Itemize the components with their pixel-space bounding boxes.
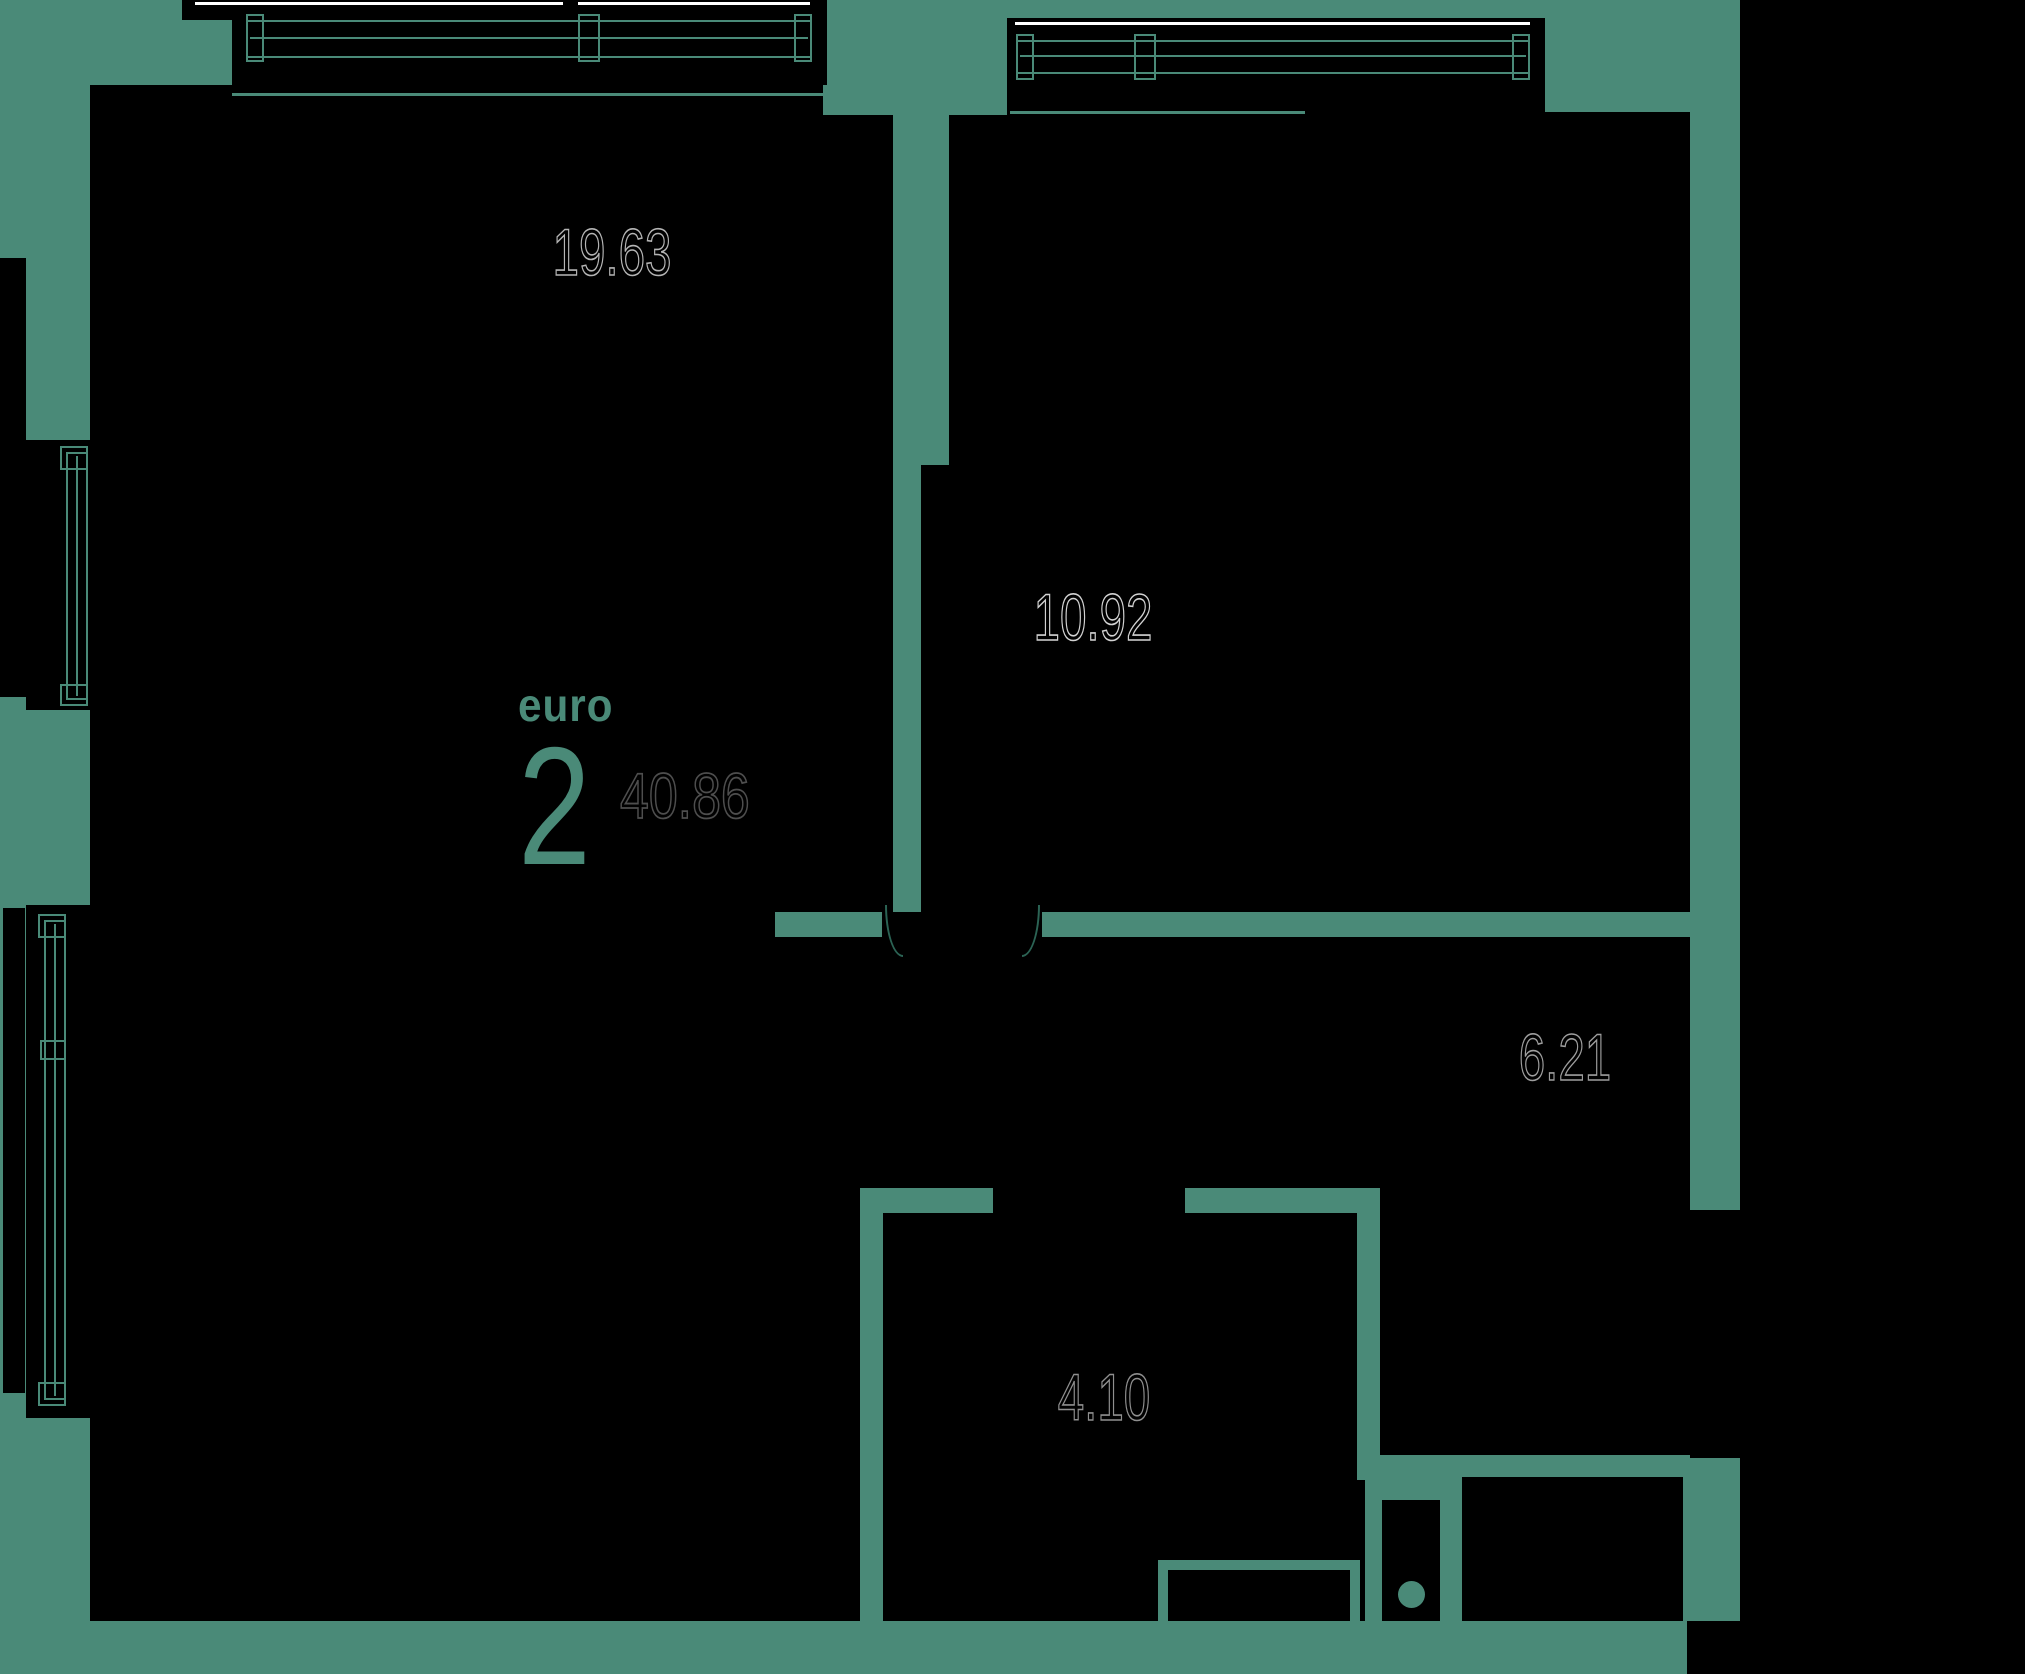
balcony-rail-lower [3,908,25,1393]
neighbor-block-bottom-right [1687,1621,2025,1674]
top-gap-between-rooms [823,85,1007,115]
window-cap-top-right-a [1016,34,1034,80]
window-cap-top-left-a [246,14,264,62]
window-cap-upper-left-bay-b [60,684,88,706]
wall-hall-north-left [775,912,882,937]
bathroom-area-label: 4.10 [1058,1364,1150,1430]
window-glazing-line-top-left [250,37,808,39]
wall-bathroom-east [1357,1213,1380,1455]
window-mullion-top-right [1134,34,1156,80]
washbasin [1158,1560,1360,1621]
window-cap-top-left-b [794,14,812,62]
neighbor-block-right [1740,0,2025,1674]
apartment-body [90,112,1690,1621]
wall-hall-north-right [1042,912,1690,937]
window-glazing-line-upper-left-bay [76,456,78,696]
window-frame-top-left [246,20,812,58]
unit-total-area: 40.86 [620,764,750,828]
balcony-rail-upper [0,258,26,697]
window-transom-lower-left-bay [40,1040,66,1060]
window-cap-lower-left-bay-a [38,914,66,938]
glass-edge-top-left-b [578,2,810,5]
shaft-niche [1462,1477,1683,1621]
toilet-circle-icon [1398,1581,1425,1608]
window-glazing-line-top-right [1020,55,1526,57]
hallway-area-label: 6.21 [1519,1024,1611,1090]
window-cap-top-right-b [1512,34,1530,80]
wall-bathroom-north-right [1185,1188,1380,1213]
window-frame-top-right [1016,40,1530,74]
floorplan-canvas: 19.63 10.92 6.21 4.10 euro 2 40.86 [0,0,2025,1674]
living-room-area-label: 19.63 [553,219,672,285]
window-cap-upper-left-bay-a [60,446,88,470]
wall-niche-east-sliver [1683,1480,1690,1621]
wall-between-top-rooms-lower [893,465,921,912]
window-mullion-top-left [578,14,600,62]
glass-edge-top-left-a [195,2,563,5]
wall-bathroom-west [860,1188,883,1621]
window-sill-top-left [232,93,827,96]
wall-between-top-rooms-upper [893,112,949,465]
glass-edge-top-right [1015,22,1530,25]
window-glazing-line-lower-left-bay [54,924,56,1396]
unit-rooms-count: 2 [518,722,591,890]
window-cap-lower-left-bay-b [38,1382,66,1406]
bedroom-area-label: 10.92 [1034,584,1153,650]
entrance-opening [1690,1210,1740,1458]
window-sill-top-right [1010,111,1305,114]
